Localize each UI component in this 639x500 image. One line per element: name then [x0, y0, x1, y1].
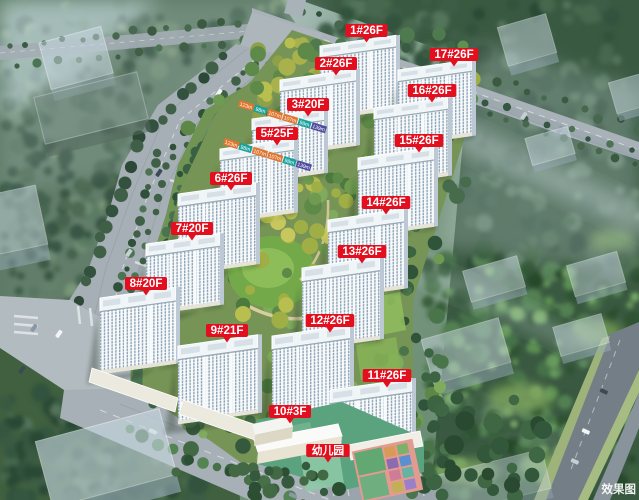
- svg-text:8#20F: 8#20F: [130, 277, 163, 290]
- svg-text:12#26F: 12#26F: [310, 314, 349, 327]
- svg-text:9#21F: 9#21F: [211, 324, 244, 337]
- svg-text:17#26F: 17#26F: [434, 48, 473, 61]
- svg-text:7#20F: 7#20F: [176, 222, 209, 235]
- svg-text:15#26F: 15#26F: [399, 134, 438, 147]
- svg-text:效果图: 效果图: [602, 482, 637, 496]
- svg-text:3#20F: 3#20F: [292, 98, 325, 111]
- svg-text:16#26F: 16#26F: [412, 84, 451, 97]
- svg-text:幼儿园: 幼儿园: [312, 443, 345, 457]
- svg-text:13#26F: 13#26F: [342, 245, 381, 258]
- svg-text:2#26F: 2#26F: [320, 57, 353, 70]
- svg-text:1#26F: 1#26F: [350, 24, 383, 37]
- svg-text:14#26F: 14#26F: [366, 196, 405, 209]
- svg-text:10#3F: 10#3F: [274, 405, 307, 418]
- svg-text:5#25F: 5#25F: [261, 127, 294, 140]
- svg-text:11#26F: 11#26F: [368, 369, 407, 382]
- svg-text:6#26F: 6#26F: [215, 172, 248, 185]
